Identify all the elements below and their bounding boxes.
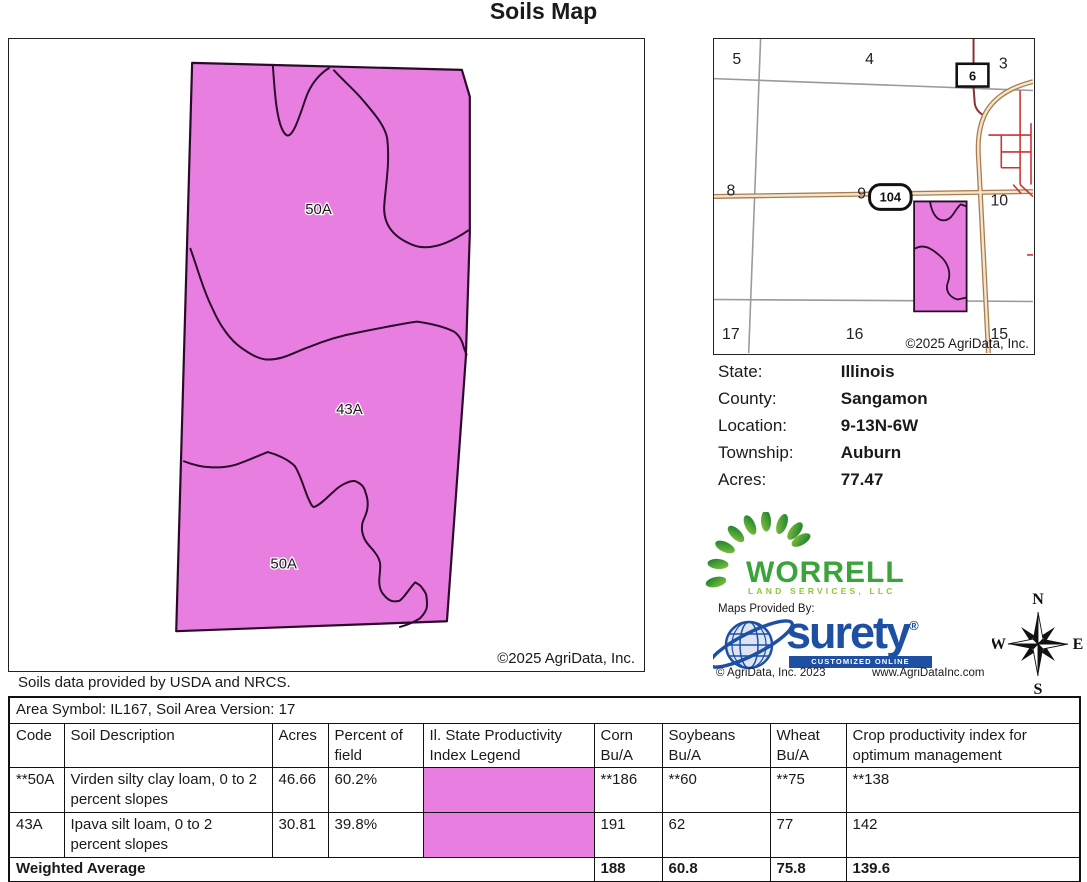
highway-badge: 104 xyxy=(870,185,912,210)
soils-data-table: Area Symbol: IL167, Soil Area Version: 1… xyxy=(8,696,1081,882)
section-number: 5 xyxy=(732,51,741,68)
locator-map-panel: 6 104 5 4 3 8 9 10 17 16 15 ©2025 AgriDa… xyxy=(713,38,1035,355)
info-label: State: xyxy=(718,358,836,385)
cell-wheat: **75 xyxy=(770,768,846,813)
cell-acres: 30.81 xyxy=(272,813,328,858)
surety-website: www.AgriDataInc.com xyxy=(872,667,984,679)
legend-color-swatch xyxy=(423,813,594,858)
col-header-soybeans: Soybeans Bu/A xyxy=(662,724,770,768)
table-header-row: Code Soil Description Acres Percent of f… xyxy=(9,724,1080,768)
info-value: Auburn xyxy=(841,443,901,462)
section-number: 9 xyxy=(857,185,866,202)
col-header-corn: Corn Bu/A xyxy=(594,724,662,768)
info-label: County: xyxy=(718,385,836,412)
compass-west-label: W xyxy=(992,636,1006,653)
registered-mark: ® xyxy=(909,618,919,633)
cell-acres: 46.66 xyxy=(272,768,328,813)
table-row: **50A Virden silty clay loam, 0 to 2 per… xyxy=(9,768,1080,813)
info-row-county: County: Sangamon xyxy=(718,385,1038,412)
legend-color-swatch xyxy=(423,768,594,813)
info-label: Acres: xyxy=(718,466,836,493)
info-label: Township: xyxy=(718,439,836,466)
locator-map-drawing: 6 104 5 4 3 8 9 10 17 16 15 ©2025 AgriDa… xyxy=(714,39,1033,353)
soils-map-report: Soils Map 50A 43A 50A ©2025 AgriData, In… xyxy=(0,0,1087,882)
section-number: 17 xyxy=(722,326,740,343)
section-number: 8 xyxy=(726,183,735,200)
soils-map-drawing: 50A 43A 50A ©2025 AgriData, Inc. xyxy=(9,39,643,670)
col-header-description: Soil Description xyxy=(64,724,272,768)
worrell-subtitle: LAND SERVICES, LLC xyxy=(748,586,896,596)
cell-soybeans: 62 xyxy=(662,813,770,858)
wa-wheat: 75.8 xyxy=(770,858,846,882)
cell-percent: 39.8% xyxy=(328,813,423,858)
soil-region-label-middle: 43A xyxy=(336,401,363,418)
section-number: 4 xyxy=(865,51,874,68)
locator-copyright: ©2025 AgriData, Inc. xyxy=(906,336,1029,351)
table-area-header-row: Area Symbol: IL167, Soil Area Version: 1… xyxy=(9,697,1080,724)
info-value: Illinois xyxy=(841,362,895,381)
weighted-average-label: Weighted Average xyxy=(9,858,594,882)
cell-code: **50A xyxy=(9,768,64,813)
compass-north-label: N xyxy=(1032,591,1044,608)
red-streets xyxy=(988,91,1033,255)
col-header-code: Code xyxy=(9,724,64,768)
wa-corn: 188 xyxy=(594,858,662,882)
soil-region-label-bottom: 50A xyxy=(270,555,297,572)
field-polygon xyxy=(176,63,470,631)
info-row-location: Location: 9-13N-6W xyxy=(718,412,1038,439)
page-title: Soils Map xyxy=(0,0,1087,25)
worrell-logo: WORRELL LAND SERVICES, LLC xyxy=(698,512,923,604)
compass-rose-icon: N S E W xyxy=(992,586,1084,698)
section-number: 3 xyxy=(999,56,1008,73)
cell-corn: **186 xyxy=(594,768,662,813)
main-map-copyright: ©2025 AgriData, Inc. xyxy=(497,650,635,667)
tan-roads xyxy=(714,82,1033,353)
cell-wheat: 77 xyxy=(770,813,846,858)
surety-copyright: © AgriData, Inc. 2023 xyxy=(716,667,825,679)
section-number: 10 xyxy=(990,192,1008,209)
cell-crop-index: 142 xyxy=(846,813,1080,858)
highway-badge-label: 104 xyxy=(880,189,902,204)
area-symbol-header: Area Symbol: IL167, Soil Area Version: 1… xyxy=(9,697,1080,724)
route-box: 6 xyxy=(957,64,989,87)
info-value: Sangamon xyxy=(841,389,928,408)
cell-soybeans: **60 xyxy=(662,768,770,813)
table-row: 43A Ipava silt loam, 0 to 2 percent slop… xyxy=(9,813,1080,858)
info-label: Location: xyxy=(718,412,836,439)
info-row-state: State: Illinois xyxy=(718,358,1038,385)
cell-crop-index: **138 xyxy=(846,768,1080,813)
info-row-township: Township: Auburn xyxy=(718,439,1038,466)
section-number: 16 xyxy=(846,326,864,343)
col-header-acres: Acres xyxy=(272,724,328,768)
surety-brand-text: surety xyxy=(786,607,909,658)
soils-map-panel: 50A 43A 50A ©2025 AgriData, Inc. xyxy=(8,38,645,672)
route-box-label: 6 xyxy=(969,69,976,84)
cell-percent: 60.2% xyxy=(328,768,423,813)
col-header-legend: Il. State Productivity Index Legend xyxy=(423,724,594,768)
col-header-crop-index: Crop productivity index for optimum mana… xyxy=(846,724,1080,768)
usda-footnote: Soils data provided by USDA and NRCS. xyxy=(18,674,291,691)
info-value: 77.47 xyxy=(841,470,884,489)
cell-description: Virden silty clay loam, 0 to 2 percent s… xyxy=(64,768,272,813)
wa-soybeans: 60.8 xyxy=(662,858,770,882)
col-header-percent: Percent of field xyxy=(328,724,423,768)
worrell-name: WORRELL xyxy=(746,556,905,589)
cell-description: Ipava silt loam, 0 to 2 percent slopes xyxy=(64,813,272,858)
soil-region-label-top: 50A xyxy=(305,201,332,218)
surety-wordmark: surety® xyxy=(786,610,919,655)
wa-crop-index: 139.6 xyxy=(846,858,1080,882)
info-value: 9-13N-6W xyxy=(841,416,918,435)
compass-east-label: E xyxy=(1073,636,1084,653)
location-info: State: Illinois County: Sangamon Locatio… xyxy=(718,358,1038,493)
cell-code: 43A xyxy=(9,813,64,858)
weighted-average-row: Weighted Average 188 60.8 75.8 139.6 xyxy=(9,858,1080,882)
worrell-leaves-icon: WORRELL LAND SERVICES, LLC xyxy=(698,512,923,604)
col-header-wheat: Wheat Bu/A xyxy=(770,724,846,768)
cell-corn: 191 xyxy=(594,813,662,858)
info-row-acres: Acres: 77.47 xyxy=(718,466,1038,493)
